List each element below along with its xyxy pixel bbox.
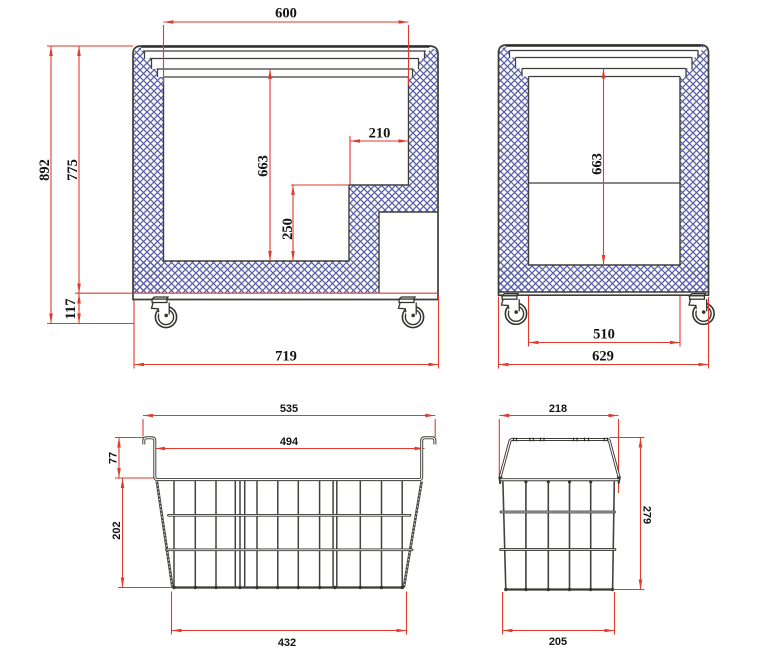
- svg-text:663: 663: [590, 153, 606, 175]
- svg-text:205: 205: [549, 636, 567, 648]
- svg-text:432: 432: [278, 637, 296, 649]
- svg-text:510: 510: [593, 327, 615, 343]
- svg-text:600: 600: [275, 6, 297, 22]
- svg-text:892: 892: [37, 159, 53, 181]
- svg-text:535: 535: [280, 403, 298, 415]
- svg-text:279: 279: [641, 506, 653, 524]
- svg-text:719: 719: [275, 349, 297, 365]
- svg-text:629: 629: [592, 349, 614, 365]
- svg-text:210: 210: [369, 126, 391, 142]
- svg-text:77: 77: [108, 452, 120, 464]
- svg-text:775: 775: [65, 159, 81, 181]
- svg-text:494: 494: [280, 436, 299, 448]
- svg-text:218: 218: [549, 403, 567, 415]
- svg-text:250: 250: [280, 218, 296, 240]
- svg-text:663: 663: [256, 155, 272, 177]
- svg-text:117: 117: [63, 299, 79, 320]
- svg-text:202: 202: [111, 521, 123, 539]
